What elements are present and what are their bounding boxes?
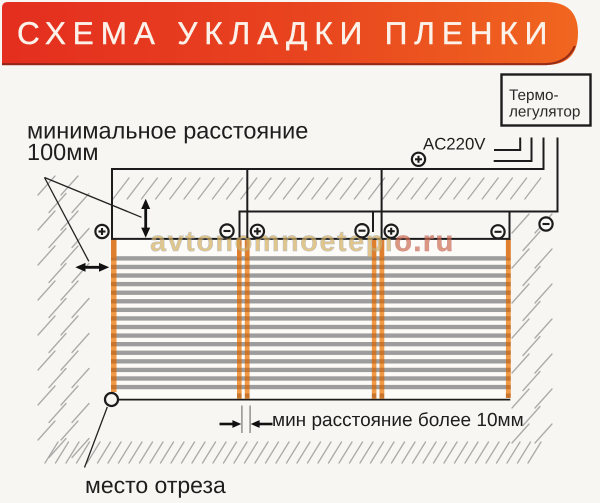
svg-text:avtonomnoeteplo.ru: avtonomnoeteplo.ru bbox=[150, 226, 455, 258]
svg-text:100мм: 100мм bbox=[27, 139, 99, 165]
svg-text:СХЕМА УКЛАДКИ ПЛЕНКИ: СХЕМА УКЛАДКИ ПЛЕНКИ bbox=[17, 15, 554, 51]
svg-text:AC220V: AC220V bbox=[423, 135, 486, 154]
svg-text:Термо-: Термо- bbox=[509, 87, 559, 104]
svg-text:место отреза: место отреза bbox=[85, 472, 226, 498]
svg-text:мин расстояние более 10мм: мин расстояние более 10мм bbox=[272, 410, 524, 431]
svg-text:легулятор: легулятор bbox=[509, 104, 580, 121]
